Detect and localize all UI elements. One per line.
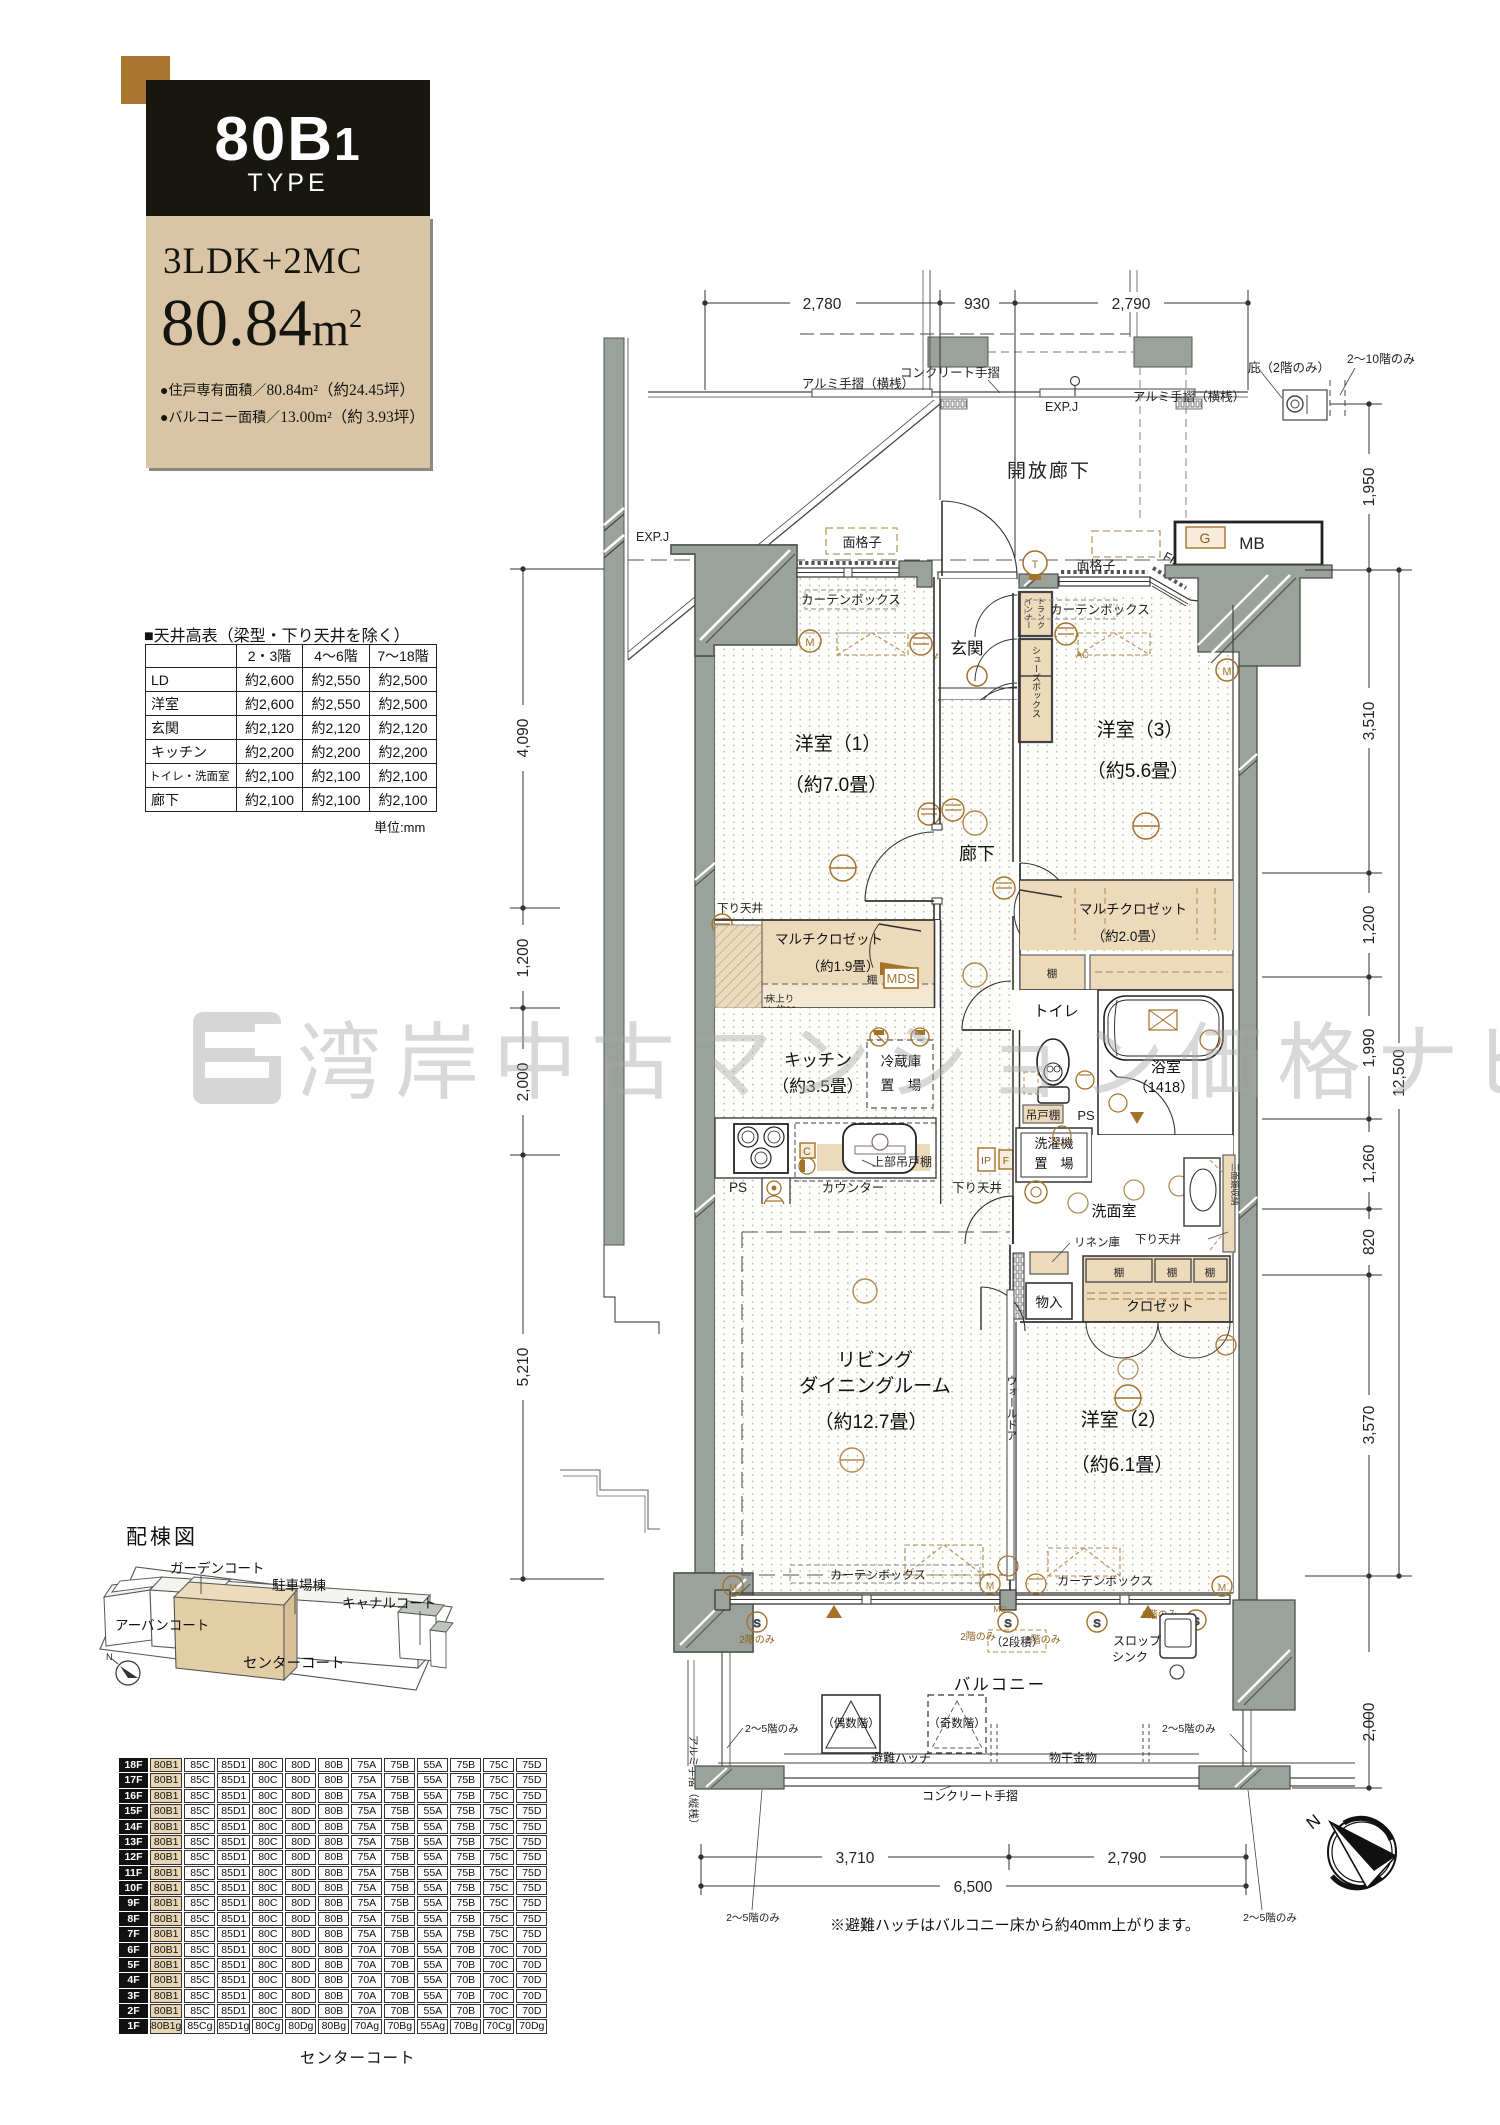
svg-text:（約7.0畳）: （約7.0畳） bbox=[785, 774, 887, 796]
svg-text:EXP.J: EXP.J bbox=[636, 530, 669, 544]
svg-text:IP: IP bbox=[981, 1155, 991, 1167]
svg-text:（2段積）: （2段積） bbox=[991, 1635, 1043, 1649]
svg-text:面格子: 面格子 bbox=[1076, 558, 1115, 573]
svg-text:クロゼット: クロゼット bbox=[1126, 1299, 1194, 1314]
svg-text:（約1.9畳）: （約1.9畳） bbox=[807, 959, 880, 974]
svg-text:（偶数階）: （偶数階） bbox=[822, 1716, 880, 1730]
svg-text:棚: 棚 bbox=[1167, 1266, 1178, 1279]
svg-text:面格子: 面格子 bbox=[842, 535, 881, 550]
svg-text:2〜5階のみ: 2〜5階のみ bbox=[745, 1723, 799, 1735]
svg-text:1,200: 1,200 bbox=[515, 938, 532, 977]
svg-text:2,790: 2,790 bbox=[1108, 1850, 1147, 1867]
svg-text:インナー: インナー bbox=[1025, 597, 1034, 629]
svg-text:キャナルコート: キャナルコート bbox=[342, 1596, 436, 1611]
svg-text:930: 930 bbox=[964, 296, 990, 313]
svg-text:5,210: 5,210 bbox=[515, 1347, 532, 1386]
svg-text:湾岸中古マンション価格ナビ: 湾岸中古マンション価格ナビ bbox=[297, 1016, 1500, 1110]
svg-text:玄関: 玄関 bbox=[951, 639, 984, 658]
svg-text:トランク: トランク bbox=[1037, 597, 1046, 629]
svg-text:3,570: 3,570 bbox=[1361, 1405, 1378, 1444]
svg-text:2〜5階のみ: 2〜5階のみ bbox=[1162, 1723, 1216, 1735]
svg-text:棚: 棚 bbox=[1047, 967, 1058, 980]
svg-text:2〜5階のみ: 2〜5階のみ bbox=[1243, 1912, 1297, 1924]
svg-text:M: M bbox=[1222, 666, 1231, 678]
svg-text:リネン庫: リネン庫 bbox=[1074, 1235, 1120, 1249]
svg-text:S: S bbox=[1093, 1618, 1100, 1630]
svg-text:2,780: 2,780 bbox=[803, 296, 842, 313]
svg-text:MB: MB bbox=[1239, 534, 1265, 553]
svg-text:棚: 棚 bbox=[867, 973, 878, 986]
svg-text:F: F bbox=[1003, 1155, 1009, 1167]
svg-text:センターコート: センターコート bbox=[243, 1655, 345, 1672]
svg-text:M: M bbox=[986, 1581, 994, 1592]
svg-text:1,200: 1,200 bbox=[1361, 905, 1378, 944]
svg-text:3,510: 3,510 bbox=[1361, 701, 1378, 740]
svg-text:2,790: 2,790 bbox=[1112, 296, 1151, 313]
svg-text:MDS: MDS bbox=[887, 971, 916, 986]
svg-text:物入: 物入 bbox=[1036, 1295, 1064, 1310]
svg-text:N: N bbox=[1303, 1811, 1324, 1834]
svg-text:洋室（2）: 洋室（2） bbox=[1081, 1409, 1168, 1431]
svg-text:上部吊戸棚: 上部吊戸棚 bbox=[872, 1154, 932, 1169]
svg-text:C: C bbox=[803, 1146, 811, 1158]
svg-text:駐車場棟: 駐車場棟 bbox=[272, 1578, 326, 1593]
svg-text:M: M bbox=[729, 1583, 737, 1594]
svg-text:3,710: 3,710 bbox=[836, 1850, 875, 1867]
svg-text:アルミ手摺（横桟）: アルミ手摺（横桟） bbox=[1133, 389, 1245, 404]
svg-text:S: S bbox=[753, 1618, 760, 1630]
svg-text:AC: AC bbox=[1076, 650, 1089, 660]
svg-text:2〜5階のみ: 2〜5階のみ bbox=[726, 1912, 780, 1924]
svg-text:M: M bbox=[1218, 1583, 1226, 1594]
svg-text:アーバンコート: アーバンコート bbox=[115, 1618, 209, 1633]
svg-text:棚: 棚 bbox=[1205, 1266, 1216, 1279]
svg-text:ガーデンコート: ガーデンコート bbox=[170, 1560, 265, 1576]
svg-text:2,000: 2,000 bbox=[1361, 1702, 1378, 1741]
svg-text:（約2.0畳）: （約2.0畳） bbox=[1092, 929, 1165, 944]
svg-text:S: S bbox=[1004, 1618, 1011, 1630]
svg-text:820: 820 bbox=[1361, 1229, 1378, 1255]
svg-text:棚: 棚 bbox=[1114, 1266, 1125, 1279]
svg-text:シンク: シンク bbox=[1112, 1650, 1148, 1664]
svg-text:2〜10階のみ: 2〜10階のみ bbox=[1347, 351, 1415, 366]
svg-text:置 場: 置 場 bbox=[1034, 1156, 1073, 1171]
svg-text:4,090: 4,090 bbox=[515, 718, 532, 757]
svg-text:カーテンボックス: カーテンボックス bbox=[801, 593, 901, 607]
svg-text:スロップ: スロップ bbox=[1113, 1634, 1161, 1648]
svg-text:下り天井: 下り天井 bbox=[717, 901, 763, 915]
svg-text:マルチクロゼット: マルチクロゼット bbox=[775, 932, 883, 947]
svg-text:PS: PS bbox=[729, 1180, 747, 1195]
svg-text:開放廊下: 開放廊下 bbox=[1007, 460, 1091, 482]
svg-text:G: G bbox=[1200, 530, 1211, 546]
svg-text:ウォールドア: ウォールドア bbox=[1005, 1375, 1018, 1441]
svg-text:PS: PS bbox=[1077, 1108, 1095, 1123]
svg-text:吊戸棚: 吊戸棚 bbox=[1026, 1108, 1061, 1122]
svg-text:コンクリート手摺: コンクリート手摺 bbox=[922, 1788, 1018, 1803]
svg-text:リビング: リビング bbox=[837, 1349, 913, 1371]
svg-text:洋室（1）: 洋室（1） bbox=[795, 733, 882, 755]
svg-text:1,950: 1,950 bbox=[1361, 467, 1378, 506]
svg-text:アルミ手摺（横桟）: アルミ手摺（横桟） bbox=[802, 376, 914, 391]
svg-text:庇（2階のみ）: 庇（2階のみ） bbox=[1248, 360, 1330, 375]
svg-text:（約6.1畳）: （約6.1畳） bbox=[1071, 1454, 1173, 1476]
svg-text:廊下: 廊下 bbox=[959, 844, 995, 864]
svg-text:カウンター: カウンター bbox=[822, 1181, 885, 1195]
svg-text:6,500: 6,500 bbox=[954, 1879, 993, 1896]
svg-text:洗面室: 洗面室 bbox=[1091, 1203, 1136, 1220]
svg-text:下り天井: 下り天井 bbox=[952, 1181, 1002, 1195]
svg-text:シューズボックス: シューズボックス bbox=[1031, 646, 1041, 718]
svg-text:T: T bbox=[1032, 559, 1039, 571]
svg-text:ダイニングルーム: ダイニングルーム bbox=[799, 1375, 950, 1397]
svg-text:下り天井: 下り天井 bbox=[1135, 1232, 1181, 1246]
svg-text:※避難ハッチはバルコニー床から約40mm上がります。: ※避難ハッチはバルコニー床から約40mm上がります。 bbox=[830, 1917, 1200, 1934]
svg-text:バルコニー: バルコニー bbox=[954, 1676, 1046, 1694]
svg-text:洋室（3）: 洋室（3） bbox=[1097, 719, 1184, 741]
svg-text:N: N bbox=[106, 1652, 113, 1662]
svg-text:三面鏡収納: 三面鏡収納 bbox=[1230, 1163, 1240, 1206]
svg-text:M: M bbox=[805, 637, 814, 649]
svg-text:EXP.J: EXP.J bbox=[1045, 400, 1078, 414]
svg-text:2階のみ: 2階のみ bbox=[739, 1634, 775, 1646]
svg-text:配棟図: 配棟図 bbox=[126, 1526, 198, 1549]
svg-text:（約12.7畳）: （約12.7畳） bbox=[815, 1411, 928, 1433]
svg-text:1,260: 1,260 bbox=[1361, 1144, 1378, 1183]
svg-text:床上り: 床上り bbox=[766, 993, 795, 1005]
svg-text:マルチクロゼット: マルチクロゼット bbox=[1079, 902, 1187, 917]
svg-text:（奇数階）: （奇数階） bbox=[928, 1716, 986, 1730]
svg-text:コンクリート手摺: コンクリート手摺 bbox=[900, 365, 1000, 380]
svg-text:（約5.6畳）: （約5.6畳） bbox=[1087, 760, 1189, 782]
svg-text:カーテンボックス: カーテンボックス bbox=[1050, 603, 1150, 617]
